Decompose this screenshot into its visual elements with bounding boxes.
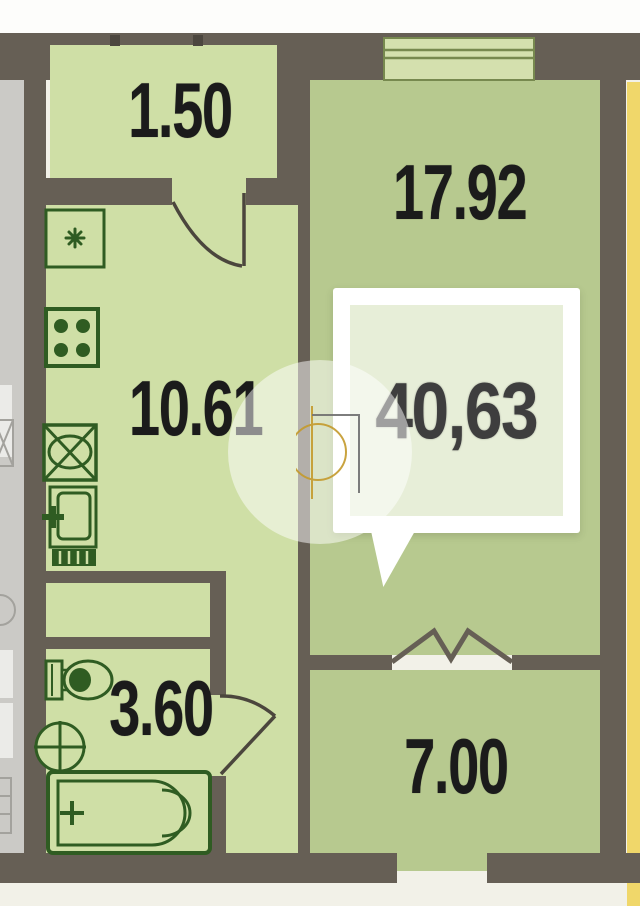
wall-room-left [298, 205, 310, 853]
door-frame-tick [110, 35, 120, 46]
wall-bath-right-lower [210, 776, 226, 853]
area-label-balcony: 7.00 [336, 727, 576, 805]
wall-entry-bottom-left [46, 178, 172, 205]
balcony-opening-floor [397, 853, 487, 871]
vent-icon [46, 210, 104, 267]
total-area-value: 40,63 [350, 305, 563, 516]
neighbor-unit-left [0, 78, 26, 853]
window-icon [384, 38, 534, 80]
wall-right [600, 78, 626, 853]
wall-bottom [0, 853, 640, 883]
balcony-opening-outside [397, 871, 487, 883]
wall-entry-bottom-right [246, 178, 310, 205]
area-label-living-room: 17.92 [340, 153, 580, 231]
niche-floor [46, 583, 210, 637]
area-label-entry: 1.50 [60, 71, 300, 149]
wall-room-bottom-left [310, 655, 392, 670]
area-label-bathroom: 3.60 [41, 669, 281, 747]
wall-kitchen-bottom [46, 571, 222, 583]
stove-icon [46, 309, 98, 366]
total-area-callout: 40,63 [333, 288, 580, 533]
wall-room-bottom-right [512, 655, 600, 670]
floorplan: 40,63 1.50 17.92 10.61 3.60 7.00 [0, 0, 640, 906]
wall-niche-bottom [46, 637, 222, 649]
top-margin [0, 0, 640, 33]
total-area-text: 40,63 [376, 365, 538, 457]
area-label-kitchen: 10.61 [76, 369, 316, 447]
entry-doorway-floor [172, 178, 246, 205]
neighbor-unit-right [627, 82, 640, 906]
door-frame-tick [193, 35, 203, 46]
bathtub-icon [48, 772, 210, 853]
